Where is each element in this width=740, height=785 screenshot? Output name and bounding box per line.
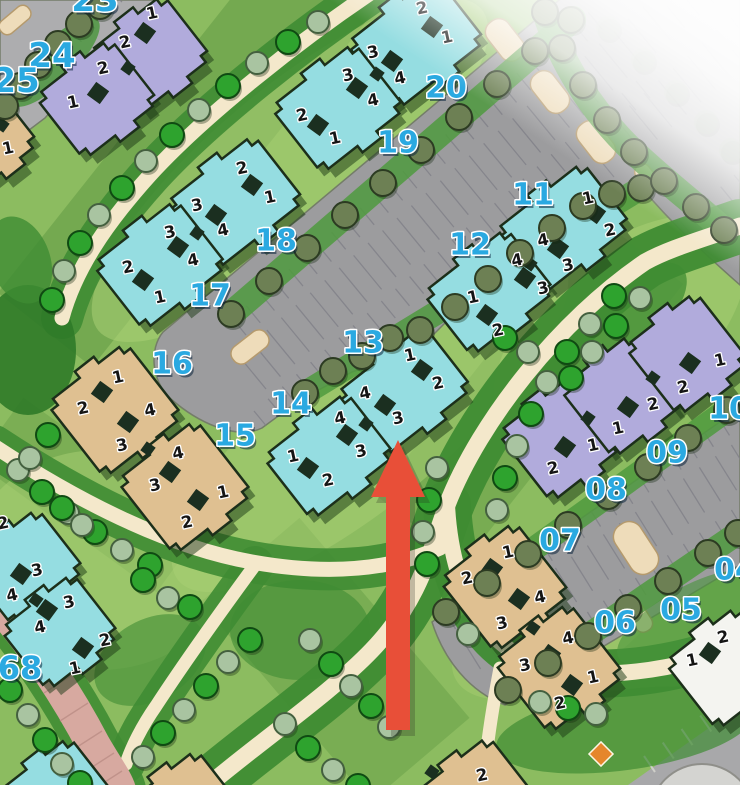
site-plan-viewport: 1221121343241231432411243431212434312124… — [0, 0, 740, 785]
site-plan-map[interactable]: 1221121343241231432411243431212434312124… — [0, 0, 740, 785]
fade-overlay — [0, 0, 740, 785]
